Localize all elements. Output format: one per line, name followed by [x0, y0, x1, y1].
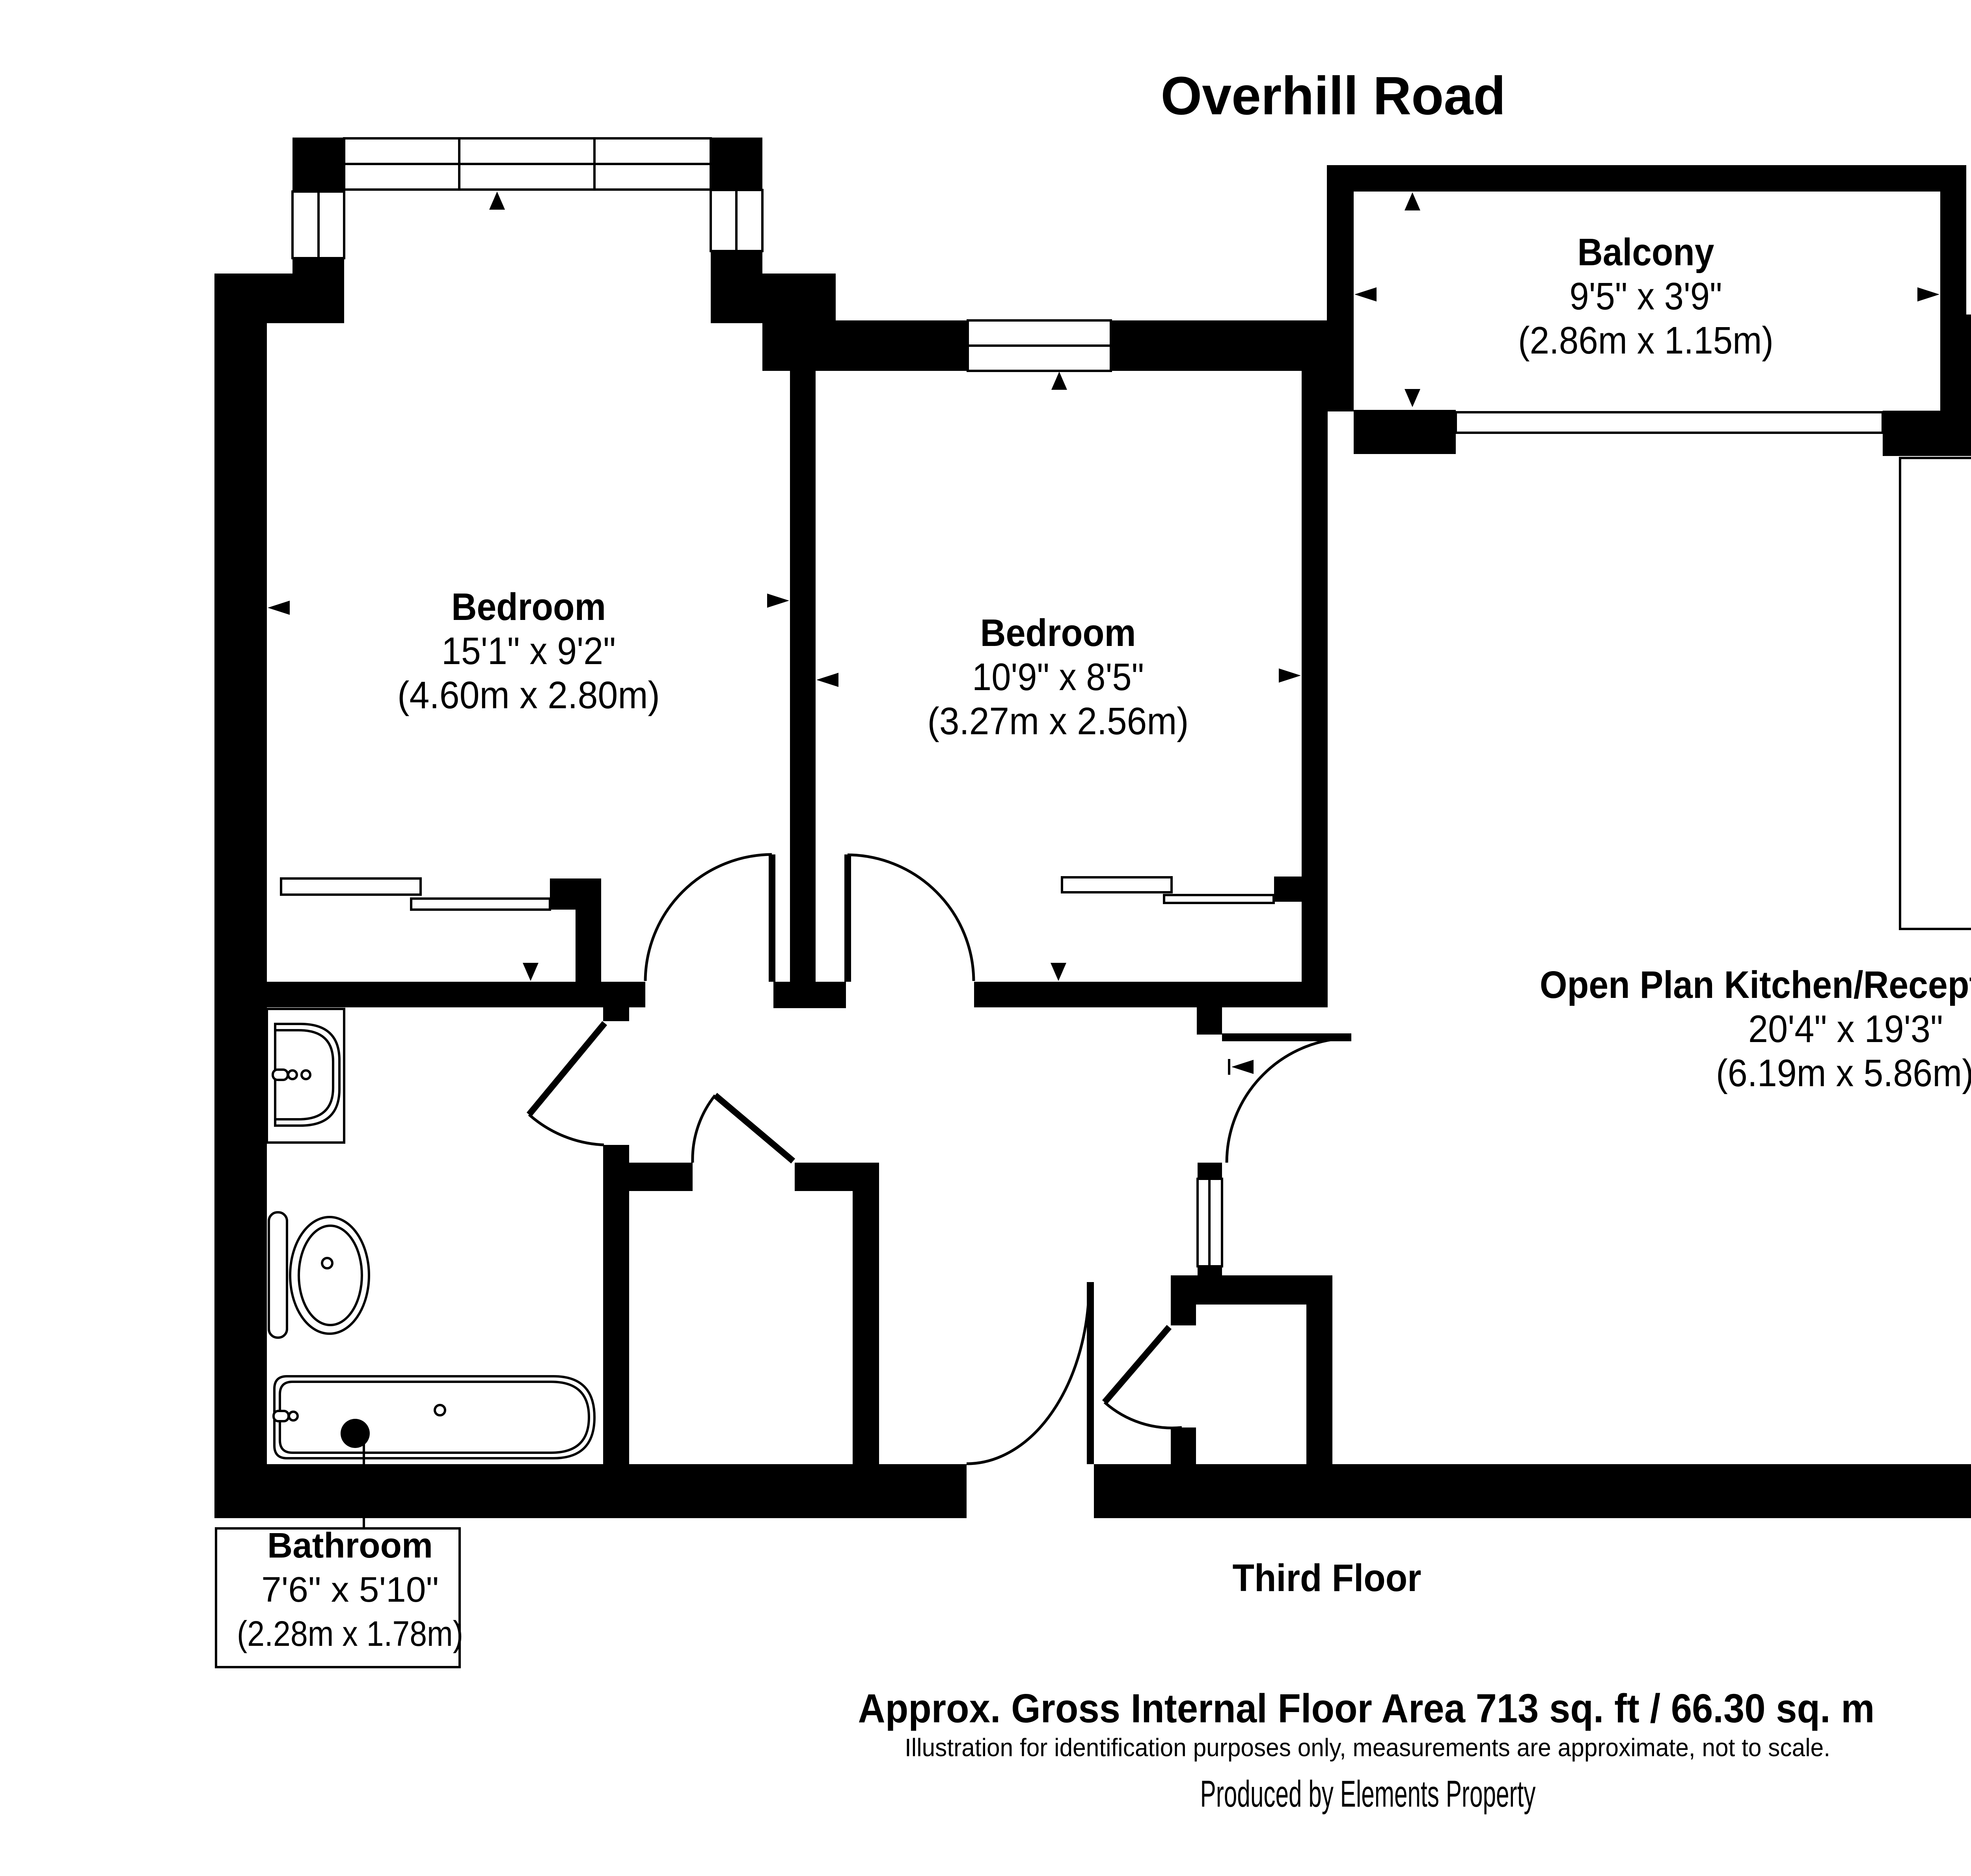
svg-text:(2.28m x 1.78m): (2.28m x 1.78m)	[237, 1614, 463, 1654]
svg-text:15'1" x 9'2": 15'1" x 9'2"	[442, 629, 616, 672]
svg-text:(4.60m x 2.80m): (4.60m x 2.80m)	[397, 674, 660, 717]
svg-text:10'9" x 8'5": 10'9" x 8'5"	[972, 655, 1144, 698]
svg-text:20'4" x 19'3": 20'4" x 19'3"	[1748, 1007, 1943, 1050]
svg-text:Bedroom: Bedroom	[451, 585, 606, 628]
svg-text:Open Plan Kitchen/Reception Ro: Open Plan Kitchen/Reception Room	[1540, 963, 1971, 1006]
svg-text:(6.19m x 5.86m): (6.19m x 5.86m)	[1716, 1052, 1971, 1094]
svg-text:Overhill Road: Overhill Road	[1161, 66, 1506, 126]
svg-text:Bedroom: Bedroom	[980, 611, 1136, 654]
svg-text:Third Floor: Third Floor	[1233, 1556, 1421, 1599]
svg-text:Approx. Gross Internal Floor A: Approx. Gross Internal Floor Area 713 sq…	[858, 1686, 1875, 1731]
svg-text:(2.86m x 1.15m): (2.86m x 1.15m)	[1518, 319, 1774, 362]
svg-text:7'6" x 5'10": 7'6" x 5'10"	[261, 1570, 439, 1610]
svg-text:9'5" x 3'9": 9'5" x 3'9"	[1570, 275, 1722, 318]
svg-text:Produced by Elements Property: Produced by Elements Property	[1200, 1773, 1536, 1815]
svg-text:Bathroom: Bathroom	[267, 1526, 433, 1565]
svg-text:(3.27m x 2.56m): (3.27m x 2.56m)	[928, 700, 1189, 743]
svg-text:Balcony: Balcony	[1578, 231, 1714, 274]
svg-text:Illustration for identificatio: Illustration for identification purposes…	[905, 1733, 1830, 1762]
